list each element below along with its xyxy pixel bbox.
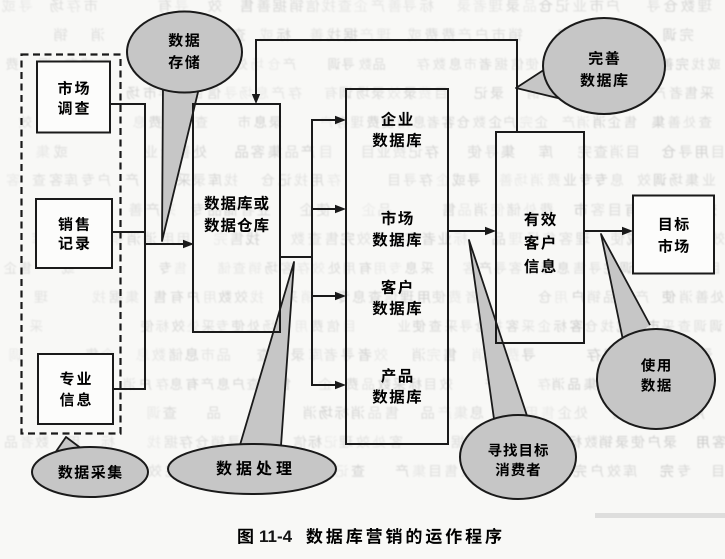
svg-text:11-4: 11-4 (259, 527, 293, 546)
